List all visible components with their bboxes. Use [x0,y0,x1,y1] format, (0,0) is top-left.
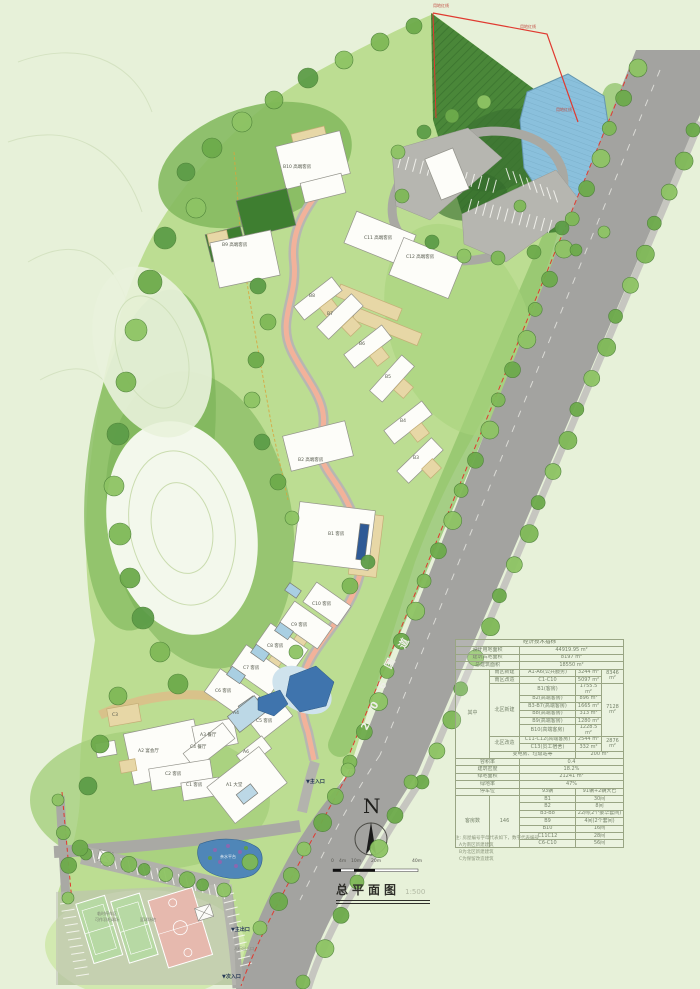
table-cell: 200 m² [576,751,624,758]
building-label: A4 [233,712,239,717]
tree [341,763,355,777]
table-cell: B10(高端客房) [520,725,576,737]
tree [444,512,462,530]
tree [52,794,64,806]
table-cell: 18.2% [520,766,624,773]
tree [598,338,616,356]
table-cell: 北区新建 [490,684,520,737]
note-line: C为保留改造建筑 [459,857,539,864]
tree [417,125,431,139]
building-label: B2 高端客房 [298,459,323,464]
boundary-label: 用地红线 [520,25,536,29]
tree [505,362,521,378]
tree [270,474,286,490]
scale-bar [333,869,418,872]
table-cell: 44919.95 m² [520,647,624,654]
table-cell: 0.4 [520,759,624,766]
tree [579,181,595,197]
tree [598,226,610,238]
tree [244,392,260,408]
table-cell: 22间(2个豪华套间) [576,810,624,817]
table-cell: 变电房、垃圾站等 [490,751,576,758]
table-cell: 总建筑面积 [456,662,520,669]
tree [197,879,209,891]
tree [555,221,569,235]
building-label: B7 [327,313,333,318]
scale-tick: 10m [351,860,361,865]
tree [404,775,418,789]
table-cell: A1-A6(公共服务) [520,669,576,676]
site-plan: B10 高端客房B9 高端客房C11 高端客房C12 高端客房B8B7B6B5B… [0,0,700,989]
building-label: B8 [309,295,315,300]
table-cell: 绿地面积 [456,773,520,780]
economic-indicator-table: 经济技术指标设计用地面积44919.95 m²建筑占地面积8197 m²总建筑面… [455,639,624,848]
table-cell: 设计用地面积 [456,647,520,654]
tree [616,90,632,106]
table-cell: 8间 [576,803,624,810]
building-label: C10 客房 [312,603,331,608]
tree [395,189,409,203]
tree [477,95,491,109]
title-underline [336,900,430,904]
tree [520,525,538,543]
table-cell: B1 [520,796,576,803]
page-title: 总平面图 [336,883,400,897]
tree [527,245,541,259]
tree [602,121,616,135]
table-cell: 3244 m² [576,669,602,676]
note-line: B为北区新建建筑 [459,850,539,857]
tree [592,150,610,168]
tree [686,123,700,137]
building-label: A3 餐厅 [200,734,216,739]
tree [250,278,266,294]
tree [661,184,677,200]
table-cell: 91辆+2辆大巴 [576,788,624,795]
building-label: B4 [400,420,406,425]
tree [609,309,623,323]
entrance-label: ▼主入口 [306,780,325,785]
tree [285,511,299,525]
tree [647,216,661,230]
tree [138,270,162,294]
table-cell: 28间 [576,832,624,839]
table-cell: B10 [520,825,576,832]
tree [417,574,431,588]
site-label: 可作羽毛球场 [95,918,119,922]
tree [150,642,170,662]
table-cell: 56间 [576,840,624,847]
building-label: A1 大堂 [226,784,242,789]
tree [265,91,283,109]
table-cell: 2544 m² [576,736,602,743]
tree [289,645,303,659]
table-cell: B8(高端客房) [520,710,576,717]
tree [559,431,577,449]
tree [79,777,97,795]
table-cell: 21241 m² [520,773,624,780]
building-label: B10 高端客房 [283,166,311,171]
tree [492,589,506,603]
table-cell: 建筑占地面积 [456,654,520,661]
table-cell: 1665 m² [576,703,602,710]
table-cell: B3-B8 [520,810,576,817]
building-label: B9 高端客房 [222,244,247,249]
tree [528,302,542,316]
tree [314,814,332,832]
tree [333,907,349,923]
tree [121,856,137,872]
table-cell: B2(高端客房) [520,695,576,702]
tree [629,59,647,77]
building-label: C7 客房 [243,667,259,672]
table-cell: 8346 m² [602,669,624,684]
table-cell: B1(客房) [520,684,576,696]
tree [531,496,545,510]
north-letter: N [363,796,381,816]
tree [132,607,154,629]
table-cell: 绿地率 [456,781,520,788]
tree [72,840,88,856]
table-cell: 8197 m² [520,654,624,661]
tree [570,402,584,416]
building-label: C1 客房 [186,784,202,789]
table-cell: 313 m² [576,710,602,717]
tree [100,852,114,866]
site-label: 亲水平台 [220,855,236,859]
table-cell: B9 [520,818,576,825]
building-label: A6 [243,751,249,756]
tree [179,872,195,888]
tree [154,227,176,249]
tree [253,921,267,935]
table-cell: 18550 m² [520,662,624,669]
tree [570,244,582,256]
tree [482,618,500,636]
tree [270,893,288,911]
tree [202,138,222,158]
table-cell: 4间(2个套间) [576,818,624,825]
site-label: 临时停车区 [97,912,117,916]
entrance-label: 人行出入口 [234,947,254,951]
tree [675,152,693,170]
tree [186,198,206,218]
tree [454,483,468,497]
tree [120,568,140,588]
title-block: 总平面图 1:500 [336,879,430,904]
building-label: B5 [385,376,391,381]
tree [56,826,70,840]
entrance-label: ▼主出口 [231,928,250,933]
scale-tick: 20m [371,860,381,865]
table-cell: 16间 [576,825,624,832]
tree [116,372,136,392]
tree [445,109,459,123]
tree [217,883,231,897]
table-title: 经济技术指标 [456,640,624,647]
tree [430,543,446,559]
tree [467,452,483,468]
tree [371,33,389,51]
tree [542,271,558,287]
table-cell: 1755.5 m² [576,684,602,696]
table-cell: 47% [520,781,624,788]
tree [335,51,353,69]
tree [545,464,561,480]
table-cell: 其中 [456,669,490,759]
tree [298,68,318,88]
tree [107,423,129,445]
building-label: C6 客房 [215,690,231,695]
tree [316,940,334,958]
building-label: C8 客房 [267,645,283,650]
scale-tick: 40m [412,860,422,865]
building-label: B6 [359,343,365,348]
table-cell: 30间 [576,796,624,803]
tree [514,200,526,212]
tree [159,868,173,882]
building-label: C9 客房 [291,624,307,629]
tree [425,235,439,249]
tree [361,555,375,569]
indicator-table: 经济技术指标设计用地面积44919.95 m²建筑占地面积8197 m²总建筑面… [455,639,623,848]
table-notes: 注: 房屋编号字母代表如下，数字代表编号A为南区新建建筑B为北区新建建筑C为保留… [459,836,539,864]
tree [297,842,311,856]
table-cell: 南区改造 [490,676,520,683]
tree [109,687,127,705]
tree [109,523,131,545]
building-label: C12 高端客房 [406,256,434,261]
tree [518,331,536,349]
tree [481,421,499,439]
tree [177,163,195,181]
boundary-label: 用地红线 [433,4,449,8]
entrance-label: ▼次入口 [222,975,241,980]
tree [457,249,471,263]
tree [622,277,638,293]
table-cell: 5097 m² [576,676,602,683]
tree [387,807,403,823]
tree [254,434,270,450]
table-cell: 南区新建 [490,669,520,676]
tree [584,370,600,386]
building-label: B1 客房 [328,533,344,538]
table-cell: 容积率 [456,759,520,766]
table-cell: B9(高端客房) [520,718,576,725]
building-label: C5 客房 [256,720,272,725]
building-label: A2 宴会厅 [138,750,159,755]
table-cell: C13(员工宿舍) [520,744,576,751]
table-cell: 1228.5 m² [576,725,602,737]
table-cell: 1280 m² [576,718,602,725]
building-label: C3 [112,714,118,719]
building-label: C2 客房 [165,773,181,778]
tree [391,145,405,159]
table-cell: 7128 m² [602,684,624,737]
tree [429,743,445,759]
site-label: 篮球场地 [140,918,156,922]
tree [327,788,343,804]
table-cell: 896 m² [576,695,602,702]
tree [506,557,522,573]
boundary-label: 用地红线 [556,108,572,112]
title-scale: 1:500 [405,888,425,896]
tree [138,863,150,875]
scale-tick: 0 [331,860,334,865]
table-cell: 停车位 [456,788,520,795]
tree [283,867,299,883]
tree [407,602,425,620]
table-cell: C11-C12(高端客房) [520,736,576,743]
note-line: A为南区新建建筑 [459,843,539,850]
scale-tick: 4m [339,860,346,865]
tree [296,975,310,989]
table-cell: 2876 m² [602,736,624,751]
table-cell: B2 [520,803,576,810]
tree [260,314,276,330]
table-cell: 93辆 [520,788,576,795]
tree [491,393,505,407]
tree [168,674,188,694]
tree [61,857,77,873]
tree [104,476,124,496]
table-cell: 332 m² [576,744,602,751]
tree [248,352,264,368]
tree [636,245,654,263]
note-line: 注: 房屋编号字母代表如下，数字代表编号 [455,836,539,843]
building-label: B3 [413,457,419,462]
building [119,759,137,774]
tree [62,892,74,904]
building-label: C11 高端客房 [364,237,392,242]
tree [125,319,147,341]
table-cell: 建筑密度 [456,766,520,773]
table-cell: B3-B7(高端客房) [520,703,576,710]
table-cell: 北区改造 [490,736,520,751]
tree [491,251,505,265]
building-label: C4 餐厅 [190,746,206,751]
tree [370,840,388,858]
tree [342,578,358,594]
tree [406,18,422,34]
tree [242,854,258,870]
tree [232,112,252,132]
tree [91,735,109,753]
table-cell: C1-C10 [520,676,576,683]
